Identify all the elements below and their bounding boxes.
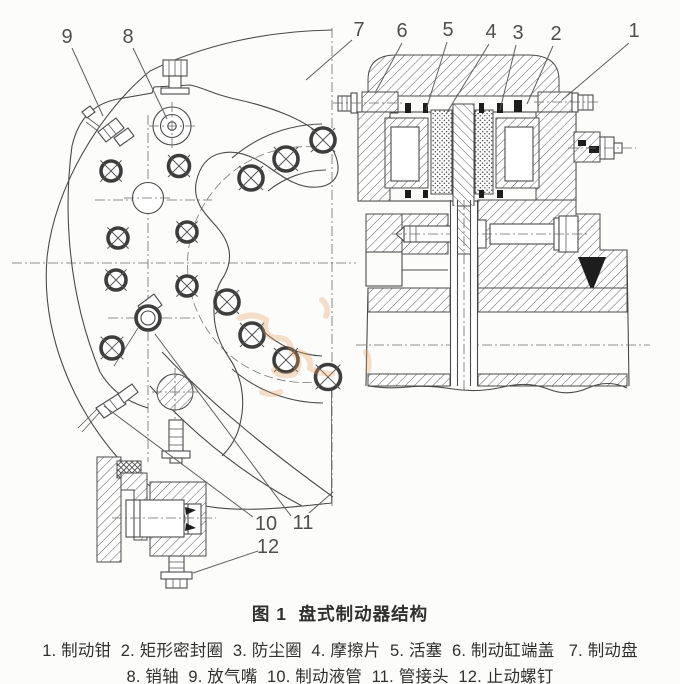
disc-sleeve (450, 200, 478, 392)
figure-page: 9 8 7 6 5 4 3 2 1 10 11 12 图 1 盘式制动器结构 1… (0, 0, 680, 684)
left-flange (333, 92, 404, 113)
callout-2: 2 (550, 24, 561, 44)
legend-line-2: 8. 销轴 9. 放气嘴 10. 制动液管 11. 管接头 12. 止动螺钉 (0, 663, 680, 684)
callout-8: 8 (122, 27, 133, 47)
callout-12: 12 (257, 537, 279, 557)
friction-pad-left (431, 110, 452, 194)
callout-4: 4 (485, 22, 496, 42)
disc-section (453, 104, 474, 208)
caliper-bridge (368, 55, 559, 96)
stop-screw (161, 556, 192, 588)
piston-left (385, 118, 428, 188)
lug-bolt (162, 420, 190, 463)
callout-11: 11 (293, 513, 314, 533)
callout-1: 1 (628, 21, 639, 41)
bleed-valve (82, 106, 134, 146)
callout-9: 9 (61, 27, 72, 47)
front-view (12, 28, 356, 509)
figure-caption: 图 1 盘式制动器结构 (0, 601, 680, 626)
callout-7: 7 (353, 20, 364, 40)
callout-5: 5 (442, 20, 453, 40)
bolt-hole-circles (100, 128, 340, 390)
callout-3: 3 (512, 23, 523, 43)
section-view (333, 55, 650, 393)
watermark-marks (240, 300, 369, 394)
pin-bolt (161, 60, 189, 94)
brake-structure-drawing (0, 0, 680, 600)
piston-right (496, 118, 539, 188)
friction-pad-right (475, 110, 493, 194)
callout-6: 6 (396, 21, 407, 41)
legend-line-1: 1. 制动钳 2. 矩形密封圈 3. 防尘圈 4. 摩擦片 5. 活塞 6. 制… (0, 637, 680, 661)
pipe-joint (568, 132, 636, 162)
right-flange (534, 92, 600, 112)
callout-10: 10 (255, 514, 277, 534)
